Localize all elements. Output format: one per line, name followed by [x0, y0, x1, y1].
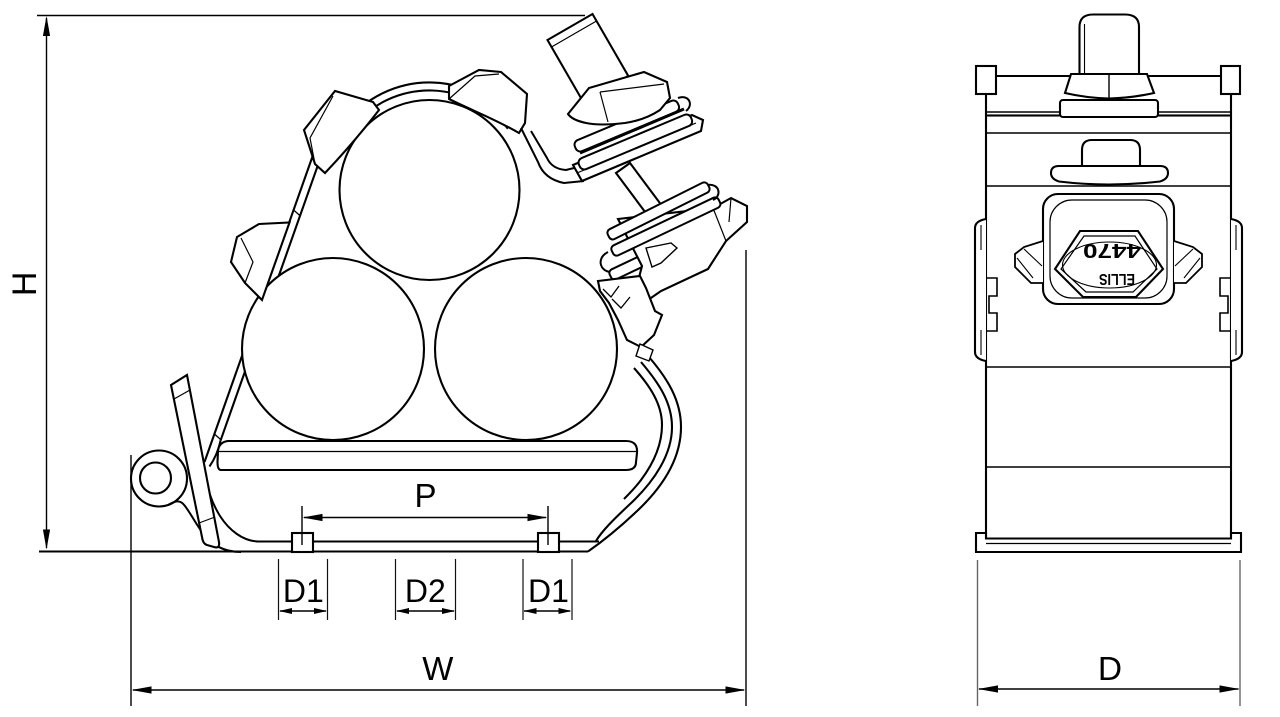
svg-text:D1: D1	[528, 573, 569, 609]
svg-text:ELLIS: ELLIS	[1099, 270, 1135, 287]
svg-text:H: H	[6, 272, 44, 297]
svg-text:D: D	[1098, 651, 1122, 688]
svg-text:W: W	[422, 650, 454, 687]
svg-text:P: P	[414, 477, 436, 514]
svg-text:D2: D2	[405, 573, 446, 609]
svg-text:D1: D1	[283, 573, 324, 609]
svg-text:4470: 4470	[1083, 239, 1141, 261]
